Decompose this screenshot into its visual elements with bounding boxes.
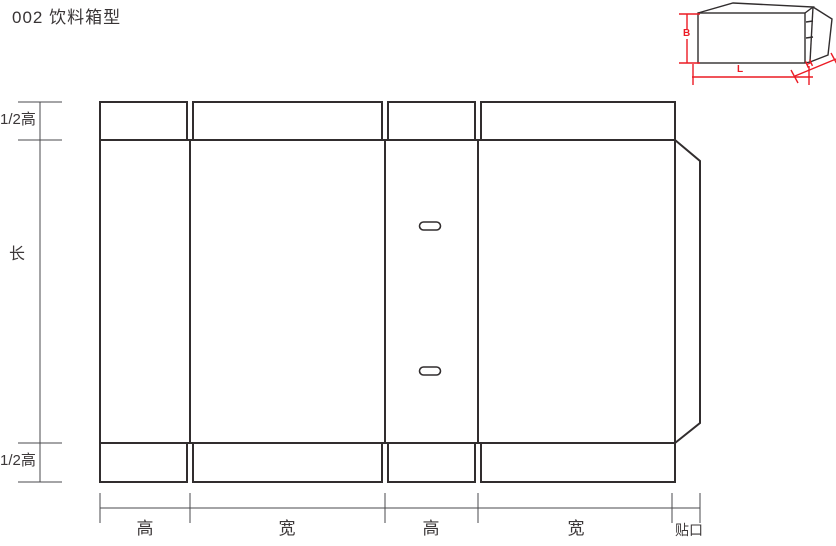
box-front-face: [698, 13, 805, 63]
top-flap-4: [481, 102, 675, 140]
dim-label-half-height-top: 1/2高: [0, 112, 40, 127]
left-dimension-lines: [18, 102, 62, 482]
dim-label-panel3-height: 高: [401, 520, 461, 537]
bottom-flap-2: [193, 443, 382, 482]
bottom-flap-4: [481, 443, 675, 482]
body-panels: [100, 140, 675, 443]
body-outline: [100, 140, 675, 443]
dim-label-length: 长: [9, 247, 25, 263]
dim-label-panel4-width: 宽: [546, 520, 606, 537]
box-open-flap: [810, 7, 832, 62]
handle-slots: [420, 222, 441, 375]
bottom-flaps: [100, 443, 675, 482]
handle-slot-bottom: [420, 367, 441, 375]
box-top-face: [698, 3, 813, 13]
dieline-svg: [0, 0, 836, 546]
dieline-template: [100, 102, 700, 482]
flap-mark-1: [806, 21, 813, 22]
dimension-lines: [18, 102, 700, 523]
glue-tab-shape: [675, 140, 700, 443]
beverage-box-dieline-drawing: 002 饮料箱型 1/2高 长 1/2高 高 宽 高 宽 贴口 B L H: [0, 0, 836, 546]
handle-slot-top: [420, 222, 441, 230]
flap-mark-2: [806, 37, 813, 38]
box-back-edge: [810, 7, 813, 62]
dim-label-panel1-height: 高: [115, 520, 175, 537]
drawing-title: 002 饮料箱型: [12, 9, 121, 26]
dim-label-half-height-bottom: 1/2高: [0, 453, 40, 468]
dim-label-glue-tab: 贴口: [670, 523, 708, 537]
box-3d-wireframe: [698, 3, 832, 63]
box3d-dim-label-B: B: [682, 29, 691, 39]
top-flaps: [100, 102, 675, 140]
top-flap-1: [100, 102, 187, 140]
dim-label-panel2-width: 宽: [257, 520, 317, 537]
top-flap-3: [388, 102, 475, 140]
bottom-dimension-lines: [100, 493, 700, 523]
bottom-flap-1: [100, 443, 187, 482]
box3d-dim-label-L: L: [737, 65, 743, 75]
top-flap-2: [193, 102, 382, 140]
bottom-flap-3: [388, 443, 475, 482]
